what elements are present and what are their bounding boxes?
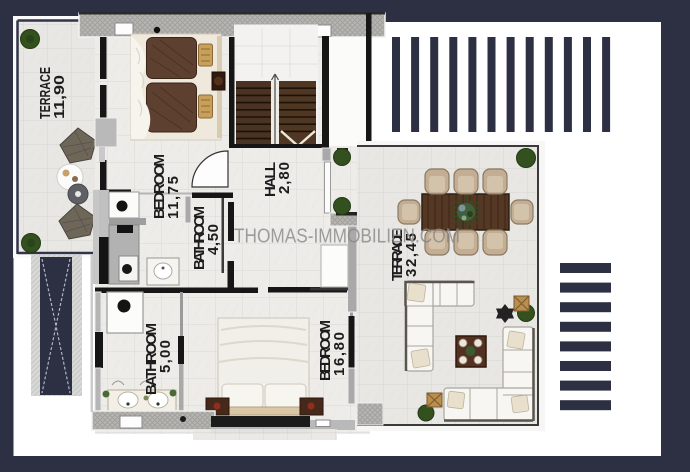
svg-text:BATHROOM: BATHROOM [143,323,160,395]
svg-text:2,80: 2,80 [276,162,293,194]
svg-text:5,00: 5,00 [157,340,174,373]
svg-text:11,75: 11,75 [165,176,182,219]
svg-text:4,50: 4,50 [205,224,222,255]
svg-text:16,80: 16,80 [331,332,348,376]
svg-text:11,90: 11,90 [51,75,68,119]
svg-text:THOMAS-IMMOBILIEN.COM: THOMAS-IMMOBILIEN.COM [234,226,460,248]
